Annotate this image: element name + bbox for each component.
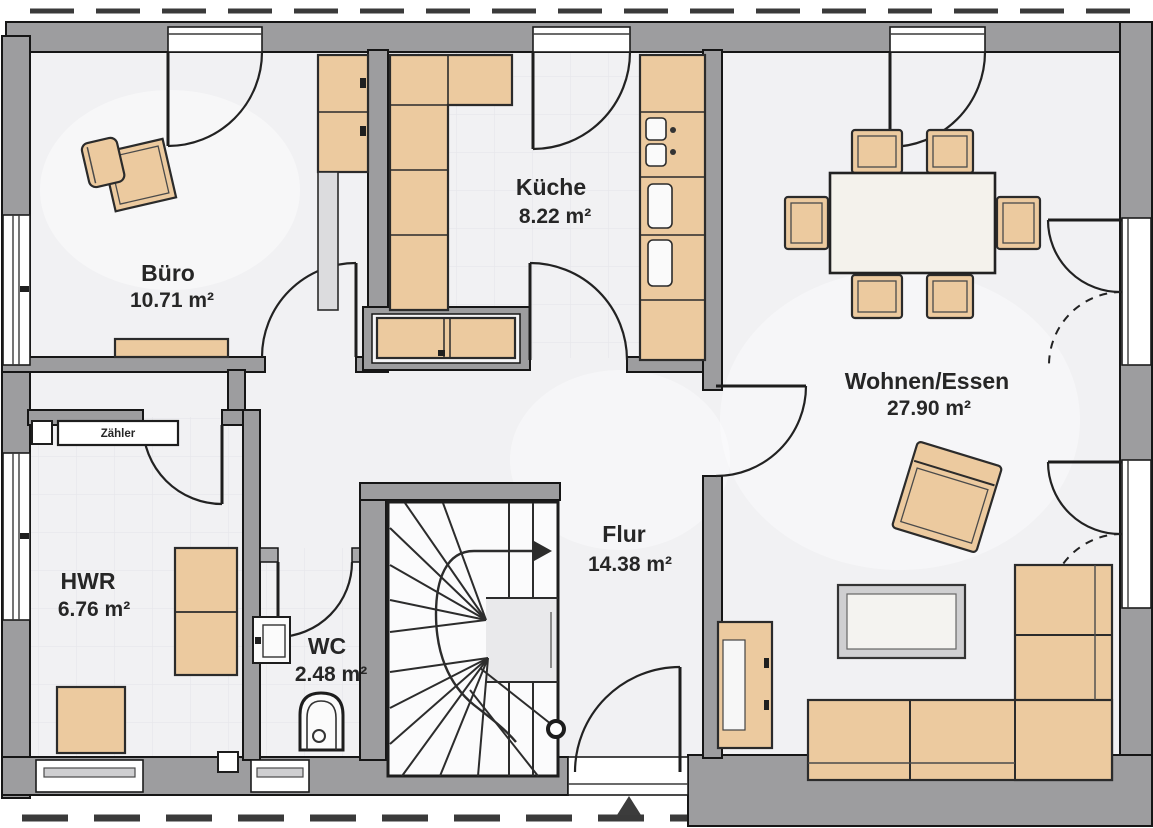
shelf-buero — [318, 172, 338, 310]
opening-entrance — [568, 757, 688, 795]
opening-terrace-door-1 — [1122, 218, 1151, 365]
dining-chair — [852, 275, 902, 318]
wall-wc-stairs — [360, 500, 386, 760]
window-mullion-tick — [20, 286, 29, 292]
wall-buero-bottom — [2, 357, 265, 372]
newel-post-icon — [548, 721, 564, 737]
dining-table — [830, 173, 995, 273]
room-label-hwr: HWR — [61, 568, 116, 594]
winder-stairs-icon — [388, 502, 564, 776]
cabinet-handle-tick — [360, 126, 366, 136]
room-label-wohnen: Wohnen/Essen — [845, 368, 1009, 394]
tv-sideboard — [718, 622, 772, 748]
dining-chair — [852, 130, 902, 173]
small-meter-box — [32, 421, 52, 444]
room-area-buero: 10.71 m² — [130, 289, 214, 312]
cabinet-buero — [318, 55, 368, 172]
room-label-buero: Büro — [141, 260, 195, 286]
window-icon — [257, 768, 303, 777]
washbasin-icon — [253, 617, 290, 663]
room-area-kueche: 8.22 m² — [519, 205, 591, 228]
toilet-icon — [300, 693, 343, 750]
coffee-table — [838, 585, 965, 658]
hall-closet-cabinet — [377, 318, 515, 358]
dining-chair — [927, 130, 973, 173]
wall-right — [1120, 22, 1152, 826]
dining-chair — [997, 197, 1040, 249]
room-label-kueche: Küche — [516, 174, 586, 200]
floor-plan-drawing: Büro 10.71 m² Küche 8.22 m² Wohnen/Essen… — [0, 0, 1153, 828]
wall-stairs-top — [360, 483, 560, 500]
wall-wc-top-left — [260, 548, 278, 562]
room-area-wohnen: 27.90 m² — [887, 397, 971, 420]
room-area-flur: 14.38 m² — [588, 553, 672, 576]
opening-terrace-door-2 — [1122, 460, 1151, 608]
cabinet-handle-tick — [360, 78, 366, 88]
room-label-flur: Flur — [602, 521, 645, 547]
floor-plan-page: Büro 10.71 m² Küche 8.22 m² Wohnen/Essen… — [0, 0, 1153, 828]
duct-box — [218, 752, 238, 772]
opening-kueche-top — [533, 27, 630, 52]
dining-chair — [785, 197, 828, 249]
wall-left — [2, 36, 30, 798]
window-icon — [44, 768, 135, 777]
cabinet-handle-tick — [438, 350, 445, 356]
wall-hwr-top-right — [222, 410, 245, 425]
sideboard-buero — [115, 339, 228, 357]
entrance-arrow-icon — [617, 796, 641, 815]
room-label-wc: WC — [308, 633, 346, 659]
wall-hwr-wc — [243, 410, 260, 760]
opening-wohnen-top — [890, 27, 985, 52]
dining-chair — [927, 275, 973, 318]
stairs-landing — [486, 598, 556, 682]
meter-box-label: Zähler — [101, 428, 136, 440]
room-area-wc: 2.48 m² — [295, 663, 367, 686]
room-area-hwr: 6.76 m² — [58, 598, 130, 621]
opening-buero-top — [168, 27, 262, 52]
washing-machine — [57, 687, 125, 753]
window-mullion-tick — [20, 533, 29, 539]
